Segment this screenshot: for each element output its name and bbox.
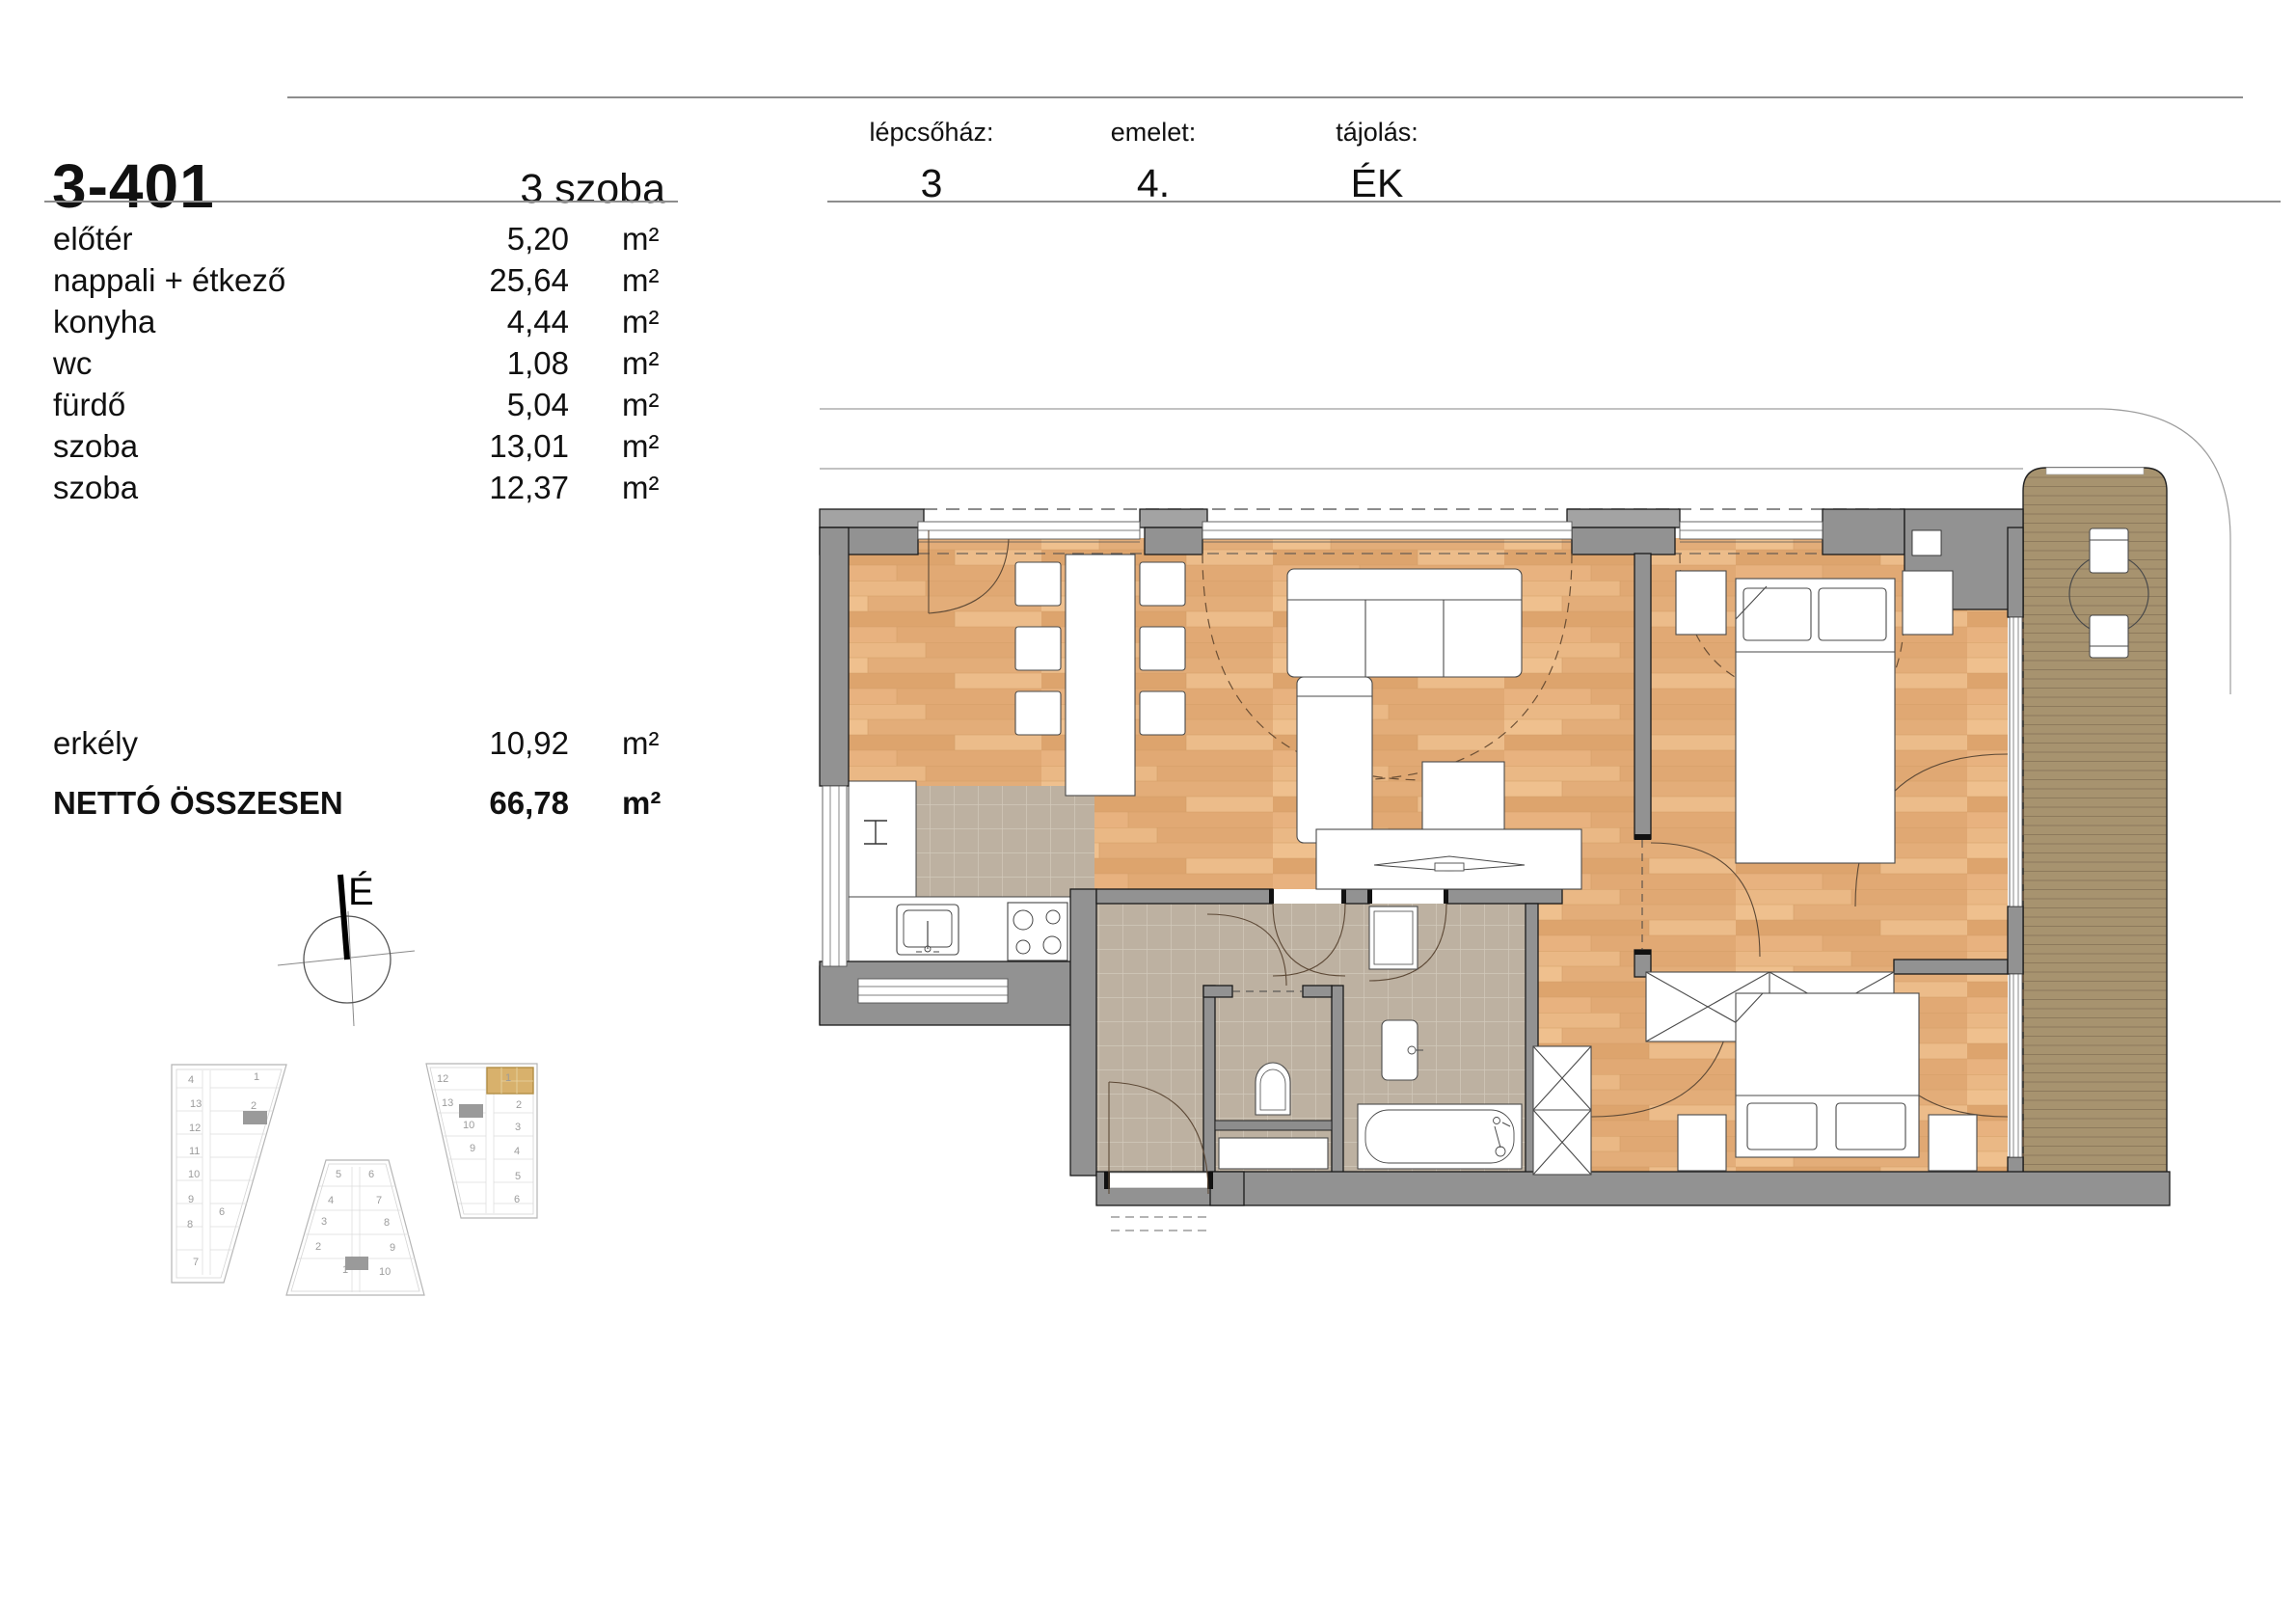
wall-wc: [1203, 986, 1232, 997]
room-area: 12,37: [289, 467, 569, 508]
wall-pier: [1145, 527, 1202, 555]
room-area: 13,01: [289, 425, 569, 467]
wall-left: [820, 527, 849, 786]
balcony-chair: [2090, 615, 2128, 658]
entry-threshold-dashes: [1111, 1217, 1210, 1231]
room-row: szoba 12,37 m²: [0, 467, 675, 508]
nightstand: [1903, 571, 1953, 635]
site-unit-number: 8: [187, 1219, 193, 1231]
site-unit-number: 3: [321, 1216, 327, 1228]
field-staircase-value: 3: [825, 161, 1038, 206]
room-unit: m²: [622, 342, 659, 384]
window-bedroom1-balcony: [2010, 617, 2022, 906]
field-orientation: tájolás: ÉK: [1271, 118, 1483, 206]
header-top-rule: [287, 96, 2243, 98]
site-unit-number: 6: [219, 1206, 225, 1218]
site-unit-number: 2: [315, 1241, 321, 1253]
window-kitchen: [823, 786, 847, 966]
wardrobe-bedroom2: [1533, 1046, 1591, 1175]
wall-wc: [1303, 986, 1332, 997]
field-staircase: lépcsőház: 3: [825, 118, 1038, 206]
compass-needle-icon: [340, 875, 347, 960]
balcony-edge-gap: [2046, 468, 2144, 474]
room-name: fürdő: [53, 384, 125, 425]
floor-plan: [810, 395, 2296, 1331]
wall-pier: [1572, 527, 1675, 555]
wall-bottom-step: [1210, 1172, 1244, 1205]
wall-balcony: [2008, 906, 2023, 974]
site-unit-number: 11: [189, 1146, 200, 1157]
wall-bedroom-divider: [1894, 960, 2008, 974]
room-name: előtér: [53, 218, 133, 259]
bath-sink: [1382, 1020, 1423, 1080]
wall-hall-top: [1345, 889, 1369, 904]
compass-north-label: É: [348, 870, 374, 913]
room-area: 1,08: [289, 342, 569, 384]
site-unit-number: 10: [379, 1266, 391, 1278]
bed-1: [1736, 579, 1895, 863]
site-unit-number: 1: [342, 1264, 348, 1276]
wall-pier: [1823, 509, 1904, 555]
unit-id: 3-401: [52, 150, 215, 222]
site-unit-number: 9: [470, 1143, 475, 1154]
balcony-row: erkély 10,92 m²: [0, 721, 675, 766]
kitchen-sink: [897, 905, 959, 955]
nightstand: [1929, 1115, 1977, 1171]
room-row: szoba 13,01 m²: [0, 425, 675, 467]
site-plan: 141321211109687 56473829110 121132103945…: [154, 1051, 559, 1316]
site-unit-number: 4: [514, 1146, 520, 1157]
floor-kitchen: [916, 786, 1094, 897]
total-row: NETTÓ ÖSSZESEN 66,78 m²: [0, 781, 675, 825]
room-row: wc 1,08 m²: [0, 342, 675, 384]
wall-bedroom1-left: [1634, 554, 1651, 839]
site-unit-number: 9: [188, 1194, 194, 1205]
room-unit: m²: [622, 425, 659, 467]
bed-2: [1736, 993, 1919, 1157]
site-unit-number: 13: [442, 1097, 453, 1109]
site-unit-number: 6: [514, 1194, 520, 1205]
balcony-chair: [2090, 528, 2128, 573]
wall-hall-top: [1446, 889, 1562, 904]
room-area: 4,44: [289, 301, 569, 342]
site-unit-number: 7: [193, 1257, 199, 1268]
site-building-b: [286, 1160, 424, 1295]
wall-pier: [1140, 509, 1207, 527]
room-area: 5,20: [289, 218, 569, 259]
site-unit-number: 3: [515, 1122, 521, 1133]
room-table: előtér 5,20 m² nappali + étkező 25,64 m²…: [0, 218, 675, 508]
unit-type: 3 szoba: [376, 166, 665, 213]
room-area: 5,04: [289, 384, 569, 425]
site-unit-number: 13: [190, 1098, 202, 1110]
room-area: 25,64: [289, 259, 569, 301]
window-kitchen-bottom: [858, 979, 1008, 1003]
wc-sink: [1219, 1138, 1328, 1169]
site-unit-number: 12: [437, 1073, 448, 1085]
balcony: [2023, 468, 2167, 1175]
site-unit-number: 7: [376, 1195, 382, 1206]
total-unit: m²: [622, 781, 661, 825]
pillow: [1743, 588, 1811, 640]
room-unit: m²: [622, 721, 659, 766]
room-name: wc: [53, 342, 92, 384]
site-unit-number: 4: [188, 1074, 194, 1086]
field-floor: emelet: 4.: [1047, 118, 1259, 206]
site-unit-number: 12: [189, 1123, 201, 1134]
total-area: 66,78: [289, 781, 569, 825]
kitchen-stove: [1008, 903, 1067, 960]
pillow: [1747, 1103, 1817, 1150]
site-unit-number: 9: [390, 1242, 395, 1254]
nightstand: [1678, 1115, 1726, 1171]
room-name: szoba: [53, 467, 138, 508]
entry-threshold: [1109, 1173, 1208, 1188]
coffee-table: [1422, 762, 1504, 834]
room-row: konyha 4,44 m²: [0, 301, 675, 342]
wall-hall-left: [1070, 889, 1096, 1176]
field-orientation-value: ÉK: [1271, 161, 1483, 206]
site-unit-number: 10: [463, 1120, 474, 1131]
wall-bottom: [1096, 1172, 2170, 1205]
field-orientation-label: tájolás:: [1271, 118, 1483, 148]
wall-wc: [1332, 986, 1343, 1175]
site-unit-number: 10: [188, 1169, 200, 1180]
pillow: [1836, 1103, 1905, 1150]
site-unit-number: 2: [251, 1100, 257, 1112]
site-unit-number: 1: [254, 1071, 259, 1083]
wall-balcony: [2008, 527, 2023, 617]
washing-machine: [1369, 906, 1418, 969]
room-area: 10,92: [289, 721, 569, 766]
title-rule-right: [827, 201, 2281, 203]
bathtub: [1358, 1104, 1522, 1169]
wall-pier: [1567, 509, 1680, 527]
site-unit-number: 4: [328, 1195, 334, 1206]
pillow: [1819, 588, 1886, 640]
tv-cabinet: [1316, 829, 1581, 889]
window-bedroom2-balcony: [2010, 974, 2022, 1157]
wc-shelf: [1215, 1121, 1332, 1130]
room-unit: m²: [622, 259, 659, 301]
title-rule-left: [44, 201, 678, 203]
compass-icon: É: [265, 849, 434, 1041]
field-floor-value: 4.: [1047, 161, 1259, 206]
room-unit: m²: [622, 301, 659, 342]
room-name: erkély: [53, 721, 138, 766]
toilet: [1256, 1063, 1290, 1115]
wall-wc: [1203, 986, 1215, 1175]
site-unit-number: 1: [505, 1072, 511, 1084]
site-unit-number: 6: [368, 1169, 374, 1180]
site-unit-number: 5: [336, 1169, 341, 1180]
nightstand: [1676, 571, 1726, 635]
wall-pier: [820, 509, 924, 527]
site-unit-number: 8: [384, 1217, 390, 1229]
room-name: nappali + étkező: [53, 259, 285, 301]
room-unit: m²: [622, 384, 659, 425]
room-unit: m²: [622, 218, 659, 259]
site-unit-number: 5: [515, 1171, 521, 1182]
dining-table: [1066, 555, 1135, 796]
room-row: fürdő 5,04 m²: [0, 384, 675, 425]
room-row: előtér 5,20 m²: [0, 218, 675, 259]
wall-shaft-recess: [1912, 530, 1941, 555]
field-staircase-label: lépcsőház:: [825, 118, 1038, 148]
page: { "header": { "unit_id": "3-401", "unit_…: [0, 0, 2296, 1623]
site-unit-number: 2: [516, 1099, 522, 1111]
room-row: nappali + étkező 25,64 m²: [0, 259, 675, 301]
room-name: szoba: [53, 425, 138, 467]
field-floor-label: emelet:: [1047, 118, 1259, 148]
room-unit: m²: [622, 467, 659, 508]
room-name: konyha: [53, 301, 155, 342]
compass-crosshair-vertical: [348, 911, 354, 1026]
balcony-deck: [2023, 468, 2167, 1175]
wall-hall-top: [1096, 889, 1273, 904]
